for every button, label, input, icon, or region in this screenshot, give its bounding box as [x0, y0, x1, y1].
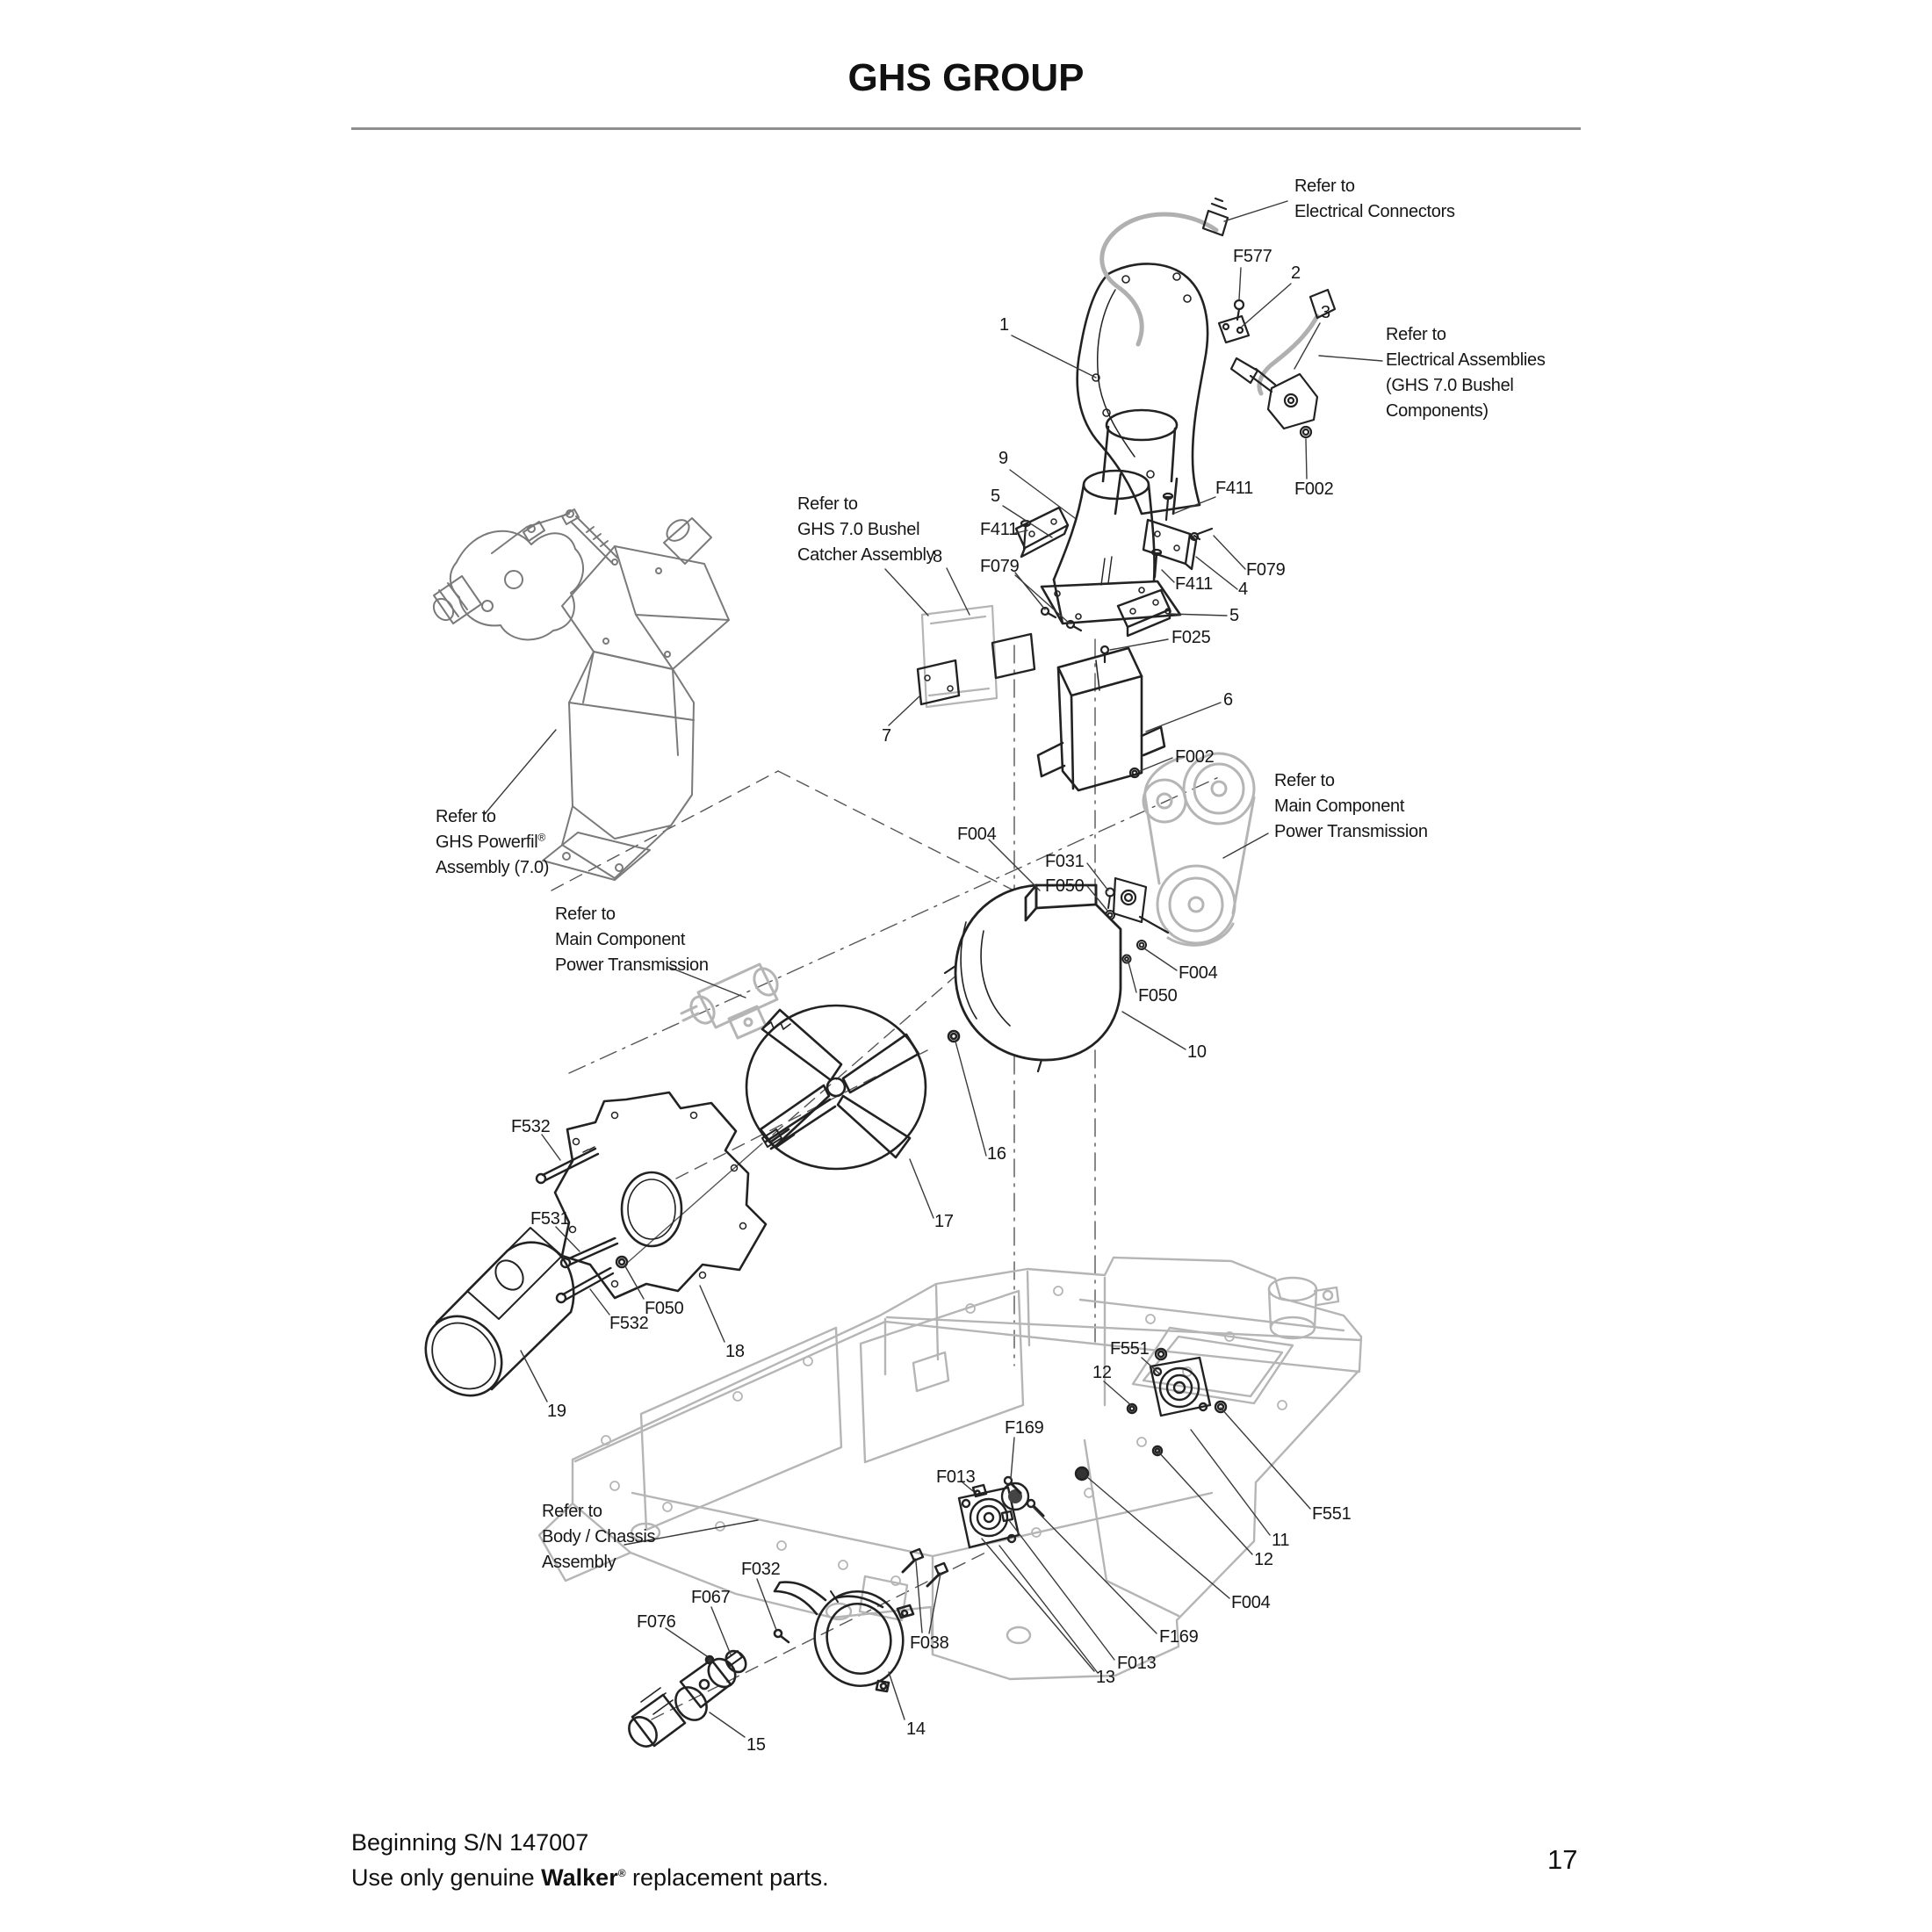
leader-14: [889, 1672, 905, 1719]
callout-F050-c: F050: [645, 1300, 683, 1317]
callout-F004-b: F004: [1179, 964, 1217, 982]
leader-F025: [1110, 639, 1168, 650]
leader-15: [710, 1712, 745, 1737]
wire-harness: [1102, 214, 1317, 393]
leader-F079-left: [1015, 575, 1070, 624]
leader-6: [1146, 703, 1221, 732]
footer-text: Beginning S/N 147007 Use only genuine Wa…: [351, 1825, 829, 1895]
exploded-diagram: [0, 0, 1932, 1932]
footer-replacement: Use only genuine Walker® replacement par…: [351, 1860, 829, 1895]
callout-F050-b: F050: [1138, 987, 1177, 1005]
leader-9: [1010, 470, 1075, 518]
callout-F031: F031: [1045, 853, 1084, 870]
callout-6: 6: [1223, 691, 1233, 709]
callout-9: 9: [998, 450, 1008, 467]
leader-F002-top: [1306, 439, 1307, 479]
note-powerfil-assembly: Refer toGHS Powerfil®Assembly (7.0): [436, 804, 549, 881]
note-electrical-connectors: Refer toElectrical Connectors: [1294, 174, 1455, 225]
callout-1: 1: [999, 316, 1009, 334]
callout-F013-a: F013: [936, 1468, 975, 1486]
callout-18: 18: [725, 1343, 745, 1360]
callout-F532-b: F532: [609, 1315, 648, 1332]
leader-F067: [711, 1607, 731, 1654]
leader-F004-c: [1087, 1477, 1229, 1598]
callout-F038: F038: [910, 1634, 948, 1652]
leader-F551-b: [1221, 1408, 1310, 1509]
callout-F411-mid-right: F411: [1175, 575, 1213, 593]
leader-8: [947, 568, 970, 615]
callout-F076: F076: [637, 1613, 675, 1631]
leader-13: [999, 1546, 1098, 1673]
leader-F411-mid-right: [1162, 570, 1174, 582]
leader-F532-a: [542, 1135, 560, 1160]
callout-F079-right: F079: [1246, 561, 1285, 579]
callout-F067: F067: [691, 1589, 730, 1606]
callout-12-a: 12: [1092, 1364, 1112, 1381]
callout-F050-a: F050: [1045, 877, 1084, 895]
callout-3: 3: [1321, 304, 1330, 321]
leader-1: [1012, 335, 1096, 378]
callout-F002-top: F002: [1294, 480, 1333, 498]
leader-catcher-assembly: [885, 569, 928, 616]
parts-manual-page: GHS GROUP 123F577F00295F411F07987F411F07…: [0, 0, 1932, 1932]
callout-17: 17: [934, 1213, 954, 1230]
callout-F004-a: F004: [957, 825, 996, 843]
note-electrical-assemblies: Refer toElectrical Assemblies(GHS 7.0 Bu…: [1386, 322, 1546, 424]
callout-4: 4: [1238, 580, 1248, 598]
callout-F551-a: F551: [1110, 1340, 1149, 1358]
impeller-fan: [746, 1006, 959, 1169]
leader-17: [910, 1159, 934, 1218]
callout-F551-b: F551: [1312, 1505, 1351, 1523]
leader-16: [955, 1042, 986, 1156]
backing-plate: [555, 1092, 766, 1298]
leader-F032: [757, 1579, 776, 1630]
callout-F411-top-right: F411: [1215, 479, 1253, 497]
leader-F004-b: [1142, 947, 1177, 970]
leader-2: [1242, 284, 1291, 327]
note-catcher-assembly: Refer toGHS 7.0 BushelCatcher Assembly: [797, 492, 934, 568]
callout-F411-left: F411: [980, 521, 1018, 538]
note-main-power-left: Refer toMain ComponentPower Transmission: [555, 902, 709, 978]
callout-F169-a: F169: [1005, 1419, 1043, 1437]
leader-F013-b: [1008, 1519, 1114, 1660]
leader-F050-b: [1128, 959, 1136, 992]
idler-arm: [1114, 878, 1168, 933]
callout-11: 11: [1272, 1532, 1289, 1549]
callout-F577: F577: [1233, 248, 1272, 265]
callout-12-b: 12: [1254, 1551, 1273, 1568]
blower-clamp: [775, 1582, 913, 1696]
page-number: 17: [1547, 1844, 1577, 1876]
leader-F411-top-right: [1173, 497, 1215, 514]
leader-F076: [666, 1628, 707, 1656]
right-bearing-assembly: [1128, 1349, 1226, 1455]
callout-2: 2: [1291, 264, 1301, 282]
mount-brackets: [1016, 508, 1196, 636]
leader-F079-right: [1214, 536, 1245, 569]
callout-7: 7: [882, 727, 891, 745]
page-title: GHS GROUP: [0, 56, 1932, 100]
callout-19: 19: [547, 1402, 566, 1420]
footer-serial: Beginning S/N 147007: [351, 1825, 829, 1860]
callout-F079-left: F079: [980, 558, 1019, 575]
leader-F169-a: [1011, 1438, 1014, 1479]
leader-electrical-connectors: [1224, 201, 1287, 221]
leader-7: [889, 696, 920, 725]
callout-F032: F032: [741, 1561, 780, 1578]
switch-assembly: [1219, 290, 1335, 437]
leader-10: [1122, 1012, 1186, 1049]
callout-10: 10: [1187, 1043, 1207, 1061]
leader-12-a: [1104, 1381, 1132, 1406]
callout-14: 14: [906, 1720, 926, 1738]
note-main-power-right: Refer toMain ComponentPower Transmission: [1274, 768, 1428, 845]
deflector-cone: [410, 1228, 573, 1410]
leader-F169-b: [1033, 1507, 1157, 1633]
title-rule: [351, 127, 1581, 130]
callout-F002-bottom: F002: [1175, 748, 1214, 766]
leader-electrical-assemblies: [1319, 356, 1382, 361]
callout-15: 15: [746, 1736, 766, 1754]
leader-11: [1191, 1430, 1270, 1535]
leader-powerfil-assembly: [485, 730, 556, 814]
catcher-plates: [918, 606, 1034, 707]
callout-16: 16: [987, 1145, 1006, 1163]
leader-19: [521, 1351, 547, 1402]
leader-F050-c: [625, 1266, 644, 1299]
driveshaft: [624, 1630, 789, 1752]
callout-F004-c: F004: [1231, 1594, 1270, 1611]
leader-F004-a: [989, 840, 1040, 890]
leader-F079-left: [1015, 573, 1045, 609]
leader-F577: [1239, 268, 1241, 299]
leader-F038: [916, 1561, 922, 1633]
callout-5-left: 5: [991, 487, 1000, 505]
blower-housing: [945, 885, 1121, 1071]
note-body-chassis: Refer toBody / ChassisAssembly: [542, 1499, 655, 1575]
callout-F169-b: F169: [1159, 1628, 1198, 1646]
power-transmission-pulleys: [1143, 753, 1254, 945]
callout-5-right: 5: [1229, 607, 1239, 624]
callout-F532-a: F532: [511, 1118, 550, 1135]
callout-F025: F025: [1171, 629, 1210, 646]
callout-F013-b: F013: [1117, 1654, 1156, 1672]
callout-13: 13: [1096, 1669, 1115, 1686]
leader-18: [700, 1286, 724, 1342]
leader-F532-b: [590, 1289, 609, 1315]
callout-F531: F531: [530, 1210, 569, 1228]
